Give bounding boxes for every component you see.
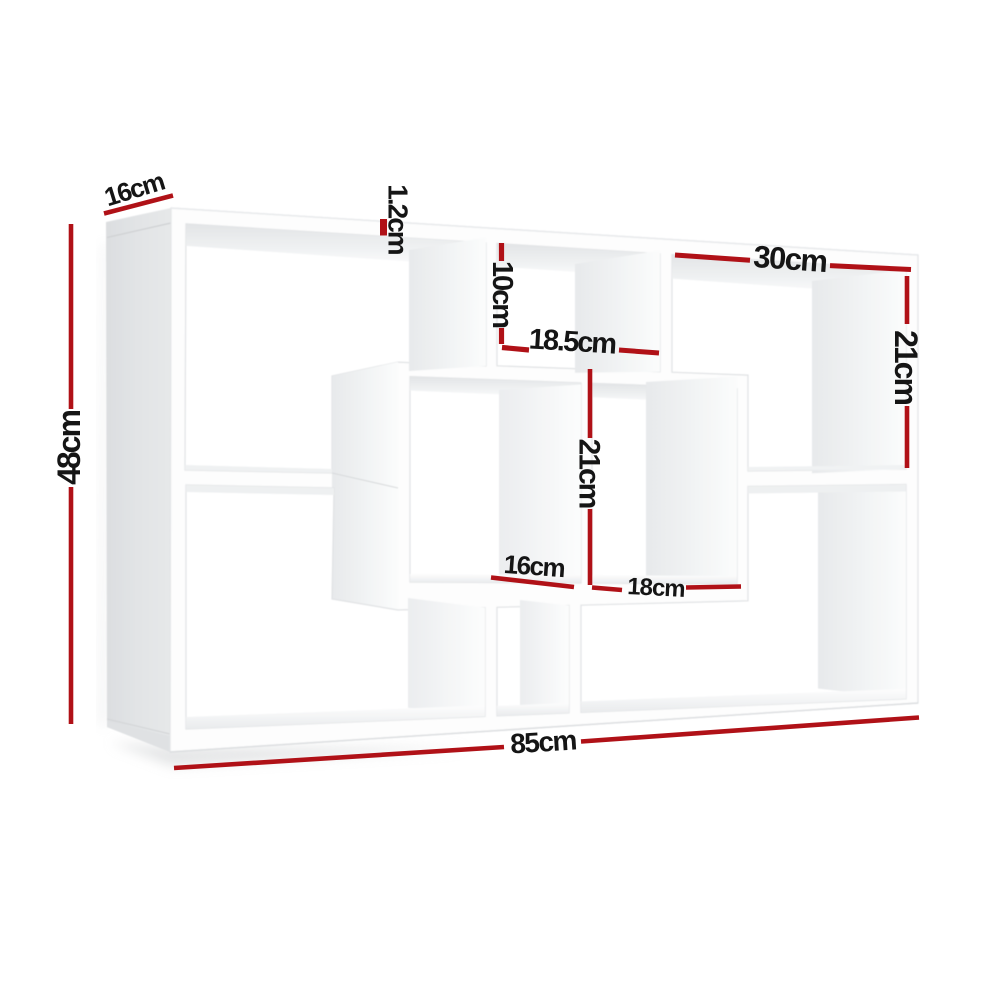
svg-text:30cm: 30cm [752,239,828,279]
svg-text:1.2cm: 1.2cm [383,184,414,254]
svg-text:18.5cm: 18.5cm [528,323,616,360]
svg-text:21cm: 21cm [573,439,606,508]
svg-text:48cm: 48cm [51,411,87,485]
svg-text:18cm: 18cm [627,573,686,603]
svg-text:10cm: 10cm [486,261,518,327]
svg-text:16cm: 16cm [503,549,566,583]
svg-text:85cm: 85cm [509,724,577,759]
svg-text:21cm: 21cm [888,330,924,404]
